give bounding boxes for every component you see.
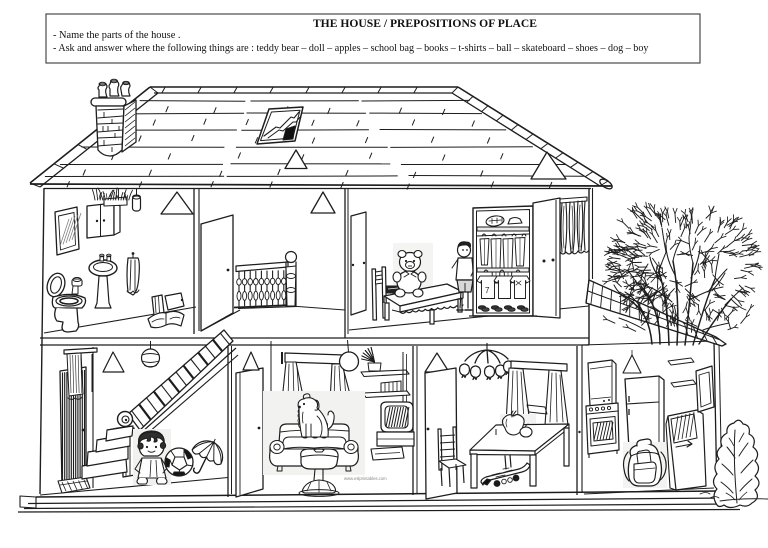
svg-text:www.eslprintables.com: www.eslprintables.com (344, 476, 387, 481)
svg-text:- Name the parts of the house: - Name the parts of the house . (53, 30, 181, 41)
svg-text:7: 7 (485, 286, 490, 295)
svg-text:- Ask and answer where the fol: - Ask and answer where the following thi… (53, 43, 648, 54)
svg-text:THE HOUSE / PREPOSITIONS OF PL: THE HOUSE / PREPOSITIONS OF PLACE (313, 17, 537, 30)
